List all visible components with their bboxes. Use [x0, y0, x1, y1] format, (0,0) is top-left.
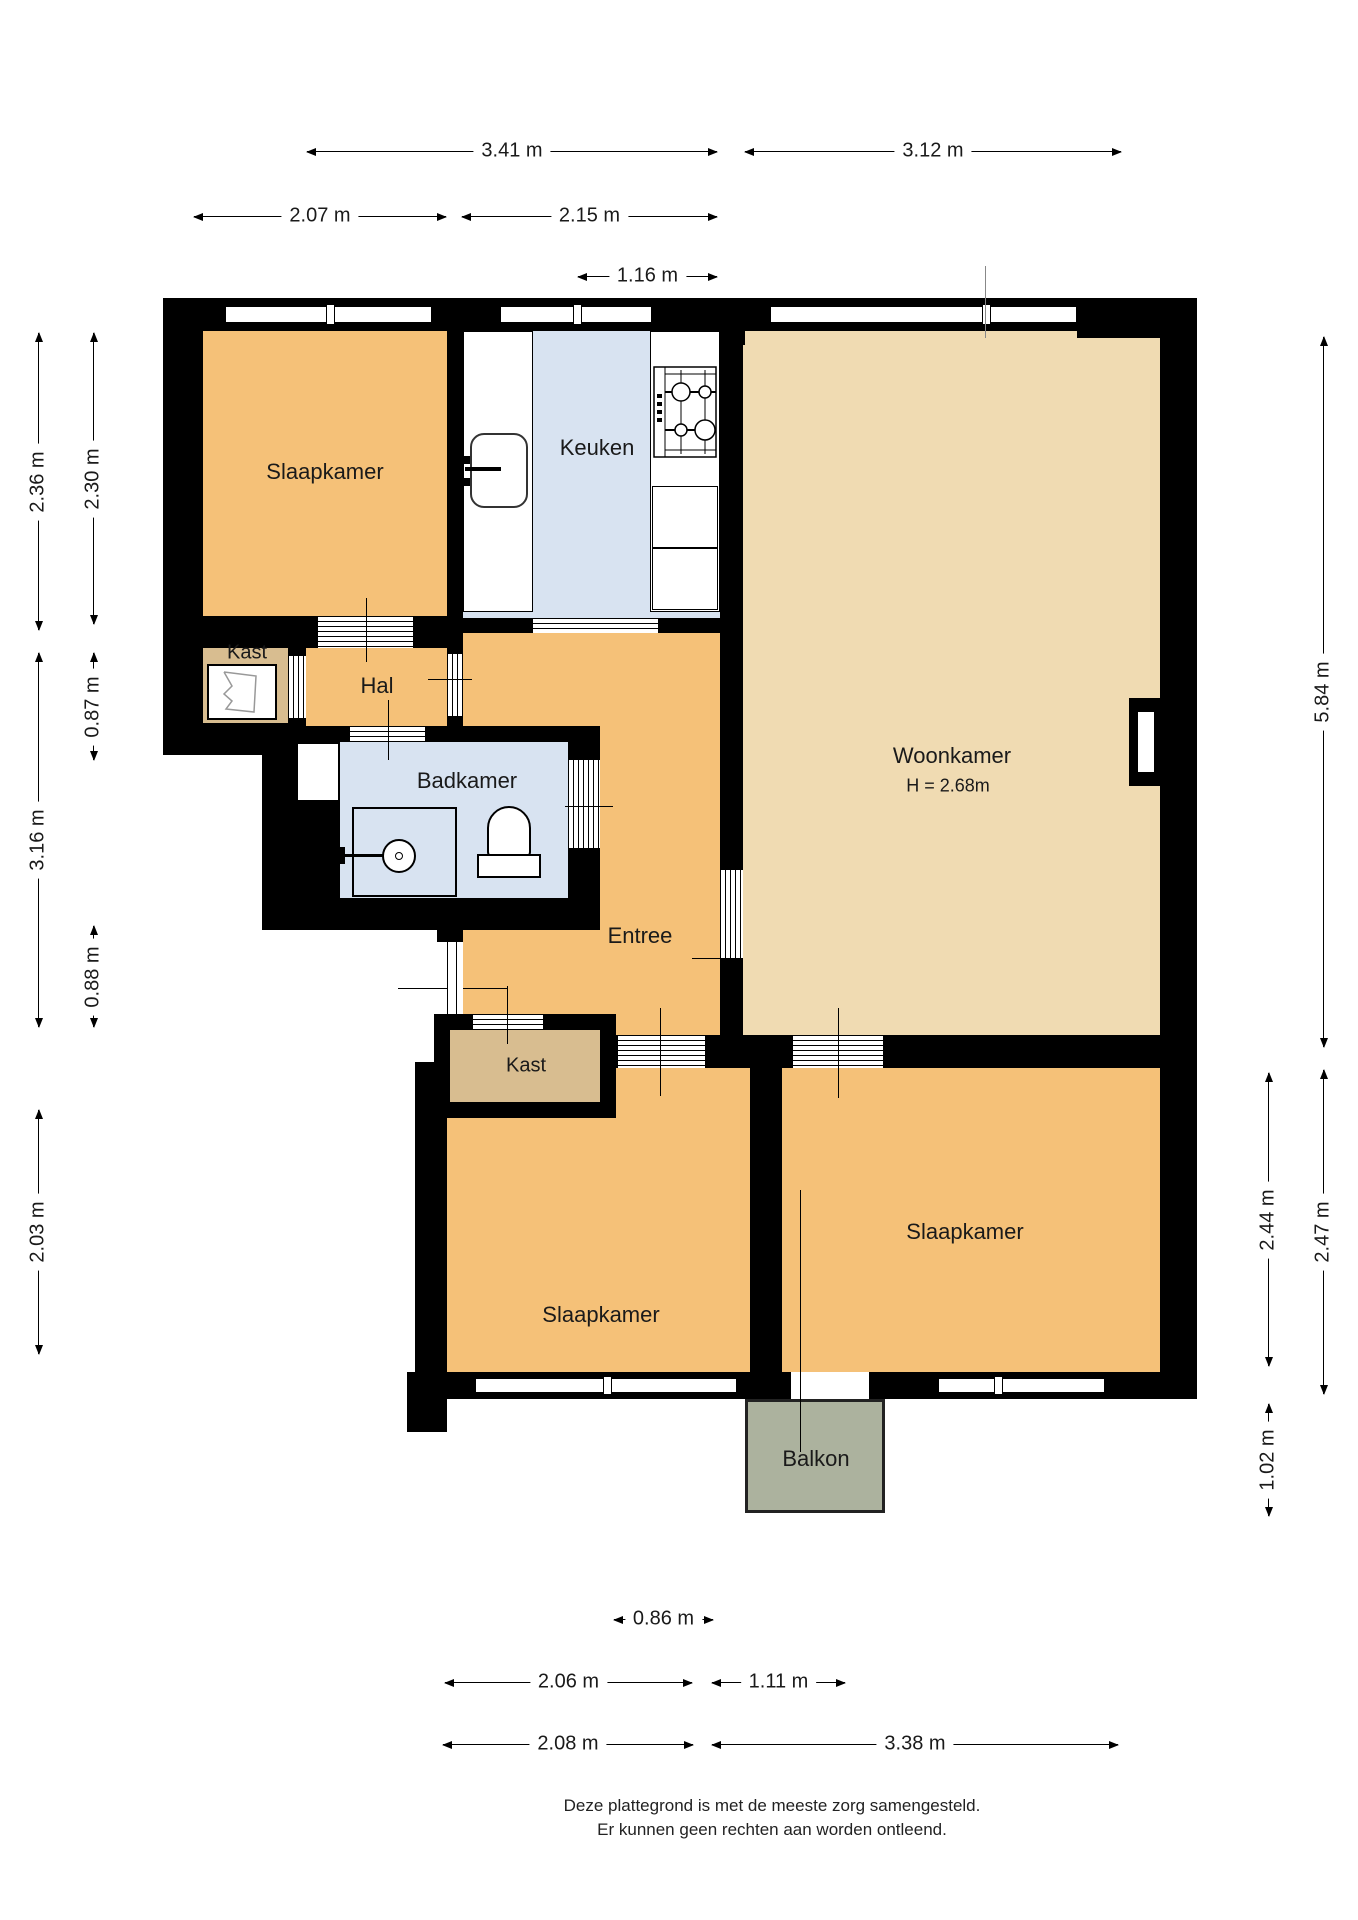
- faucet-icon: [465, 467, 501, 471]
- front-door-leaf: [447, 942, 457, 1017]
- door-badkamer: [568, 760, 600, 848]
- wall-slaapkamer2-west: [415, 1062, 447, 1372]
- dim-bottom-086: 0.86 m: [614, 1619, 713, 1620]
- wall-badkamer-south: [296, 898, 600, 930]
- balkon-door-opening: [790, 1372, 870, 1399]
- swing-line: [838, 1008, 839, 1098]
- swing-line: [565, 806, 613, 807]
- label-hal: Hal: [360, 673, 393, 699]
- swing-line: [388, 700, 389, 760]
- floor-woonkamer: [743, 331, 1160, 1035]
- dim-left-230: 2.30 m: [93, 333, 94, 624]
- toilet-tank: [477, 854, 541, 878]
- wall-right: [1160, 331, 1197, 1399]
- dim-left-236: 2.36 m: [38, 333, 39, 630]
- swing-line: [463, 988, 507, 989]
- shower-drain: [395, 852, 403, 860]
- faucet-handle: [461, 478, 470, 486]
- swing-line: [428, 679, 472, 680]
- label-woonkamer: Woonkamer: [893, 743, 1011, 769]
- label-entree: Entree: [608, 923, 673, 949]
- swing-line: [800, 1190, 801, 1452]
- dim-bottom-206: 2.06 m: [445, 1682, 692, 1683]
- reference-line: [985, 266, 986, 338]
- swing-line: [398, 988, 448, 989]
- window-mullion: [326, 305, 335, 324]
- label-slaapkamer-1: Slaapkamer: [266, 459, 383, 485]
- wall-below-slaapkamer1: [163, 616, 463, 648]
- shower-bracket: [338, 847, 345, 864]
- swing-line: [507, 986, 508, 1044]
- wall-hal-badkamer: [262, 726, 600, 742]
- dim-bottom-208: 2.08 m: [443, 1744, 693, 1745]
- dim-bottom-338: 3.38 m: [712, 1744, 1118, 1745]
- label-keuken: Keuken: [560, 435, 635, 461]
- wall-slaapkamer2-3: [750, 1035, 782, 1399]
- dim-top-312: 3.12 m: [745, 151, 1121, 152]
- wall-badkamer-west: [262, 755, 296, 930]
- faucet-handle: [461, 456, 470, 464]
- footer-disclaimer-line2: Er kunnen geen rechten aan worden ontlee…: [597, 1820, 947, 1840]
- label-slaapkamer-3: Slaapkamer: [906, 1219, 1023, 1245]
- swing-line: [692, 958, 743, 959]
- door-kast1: [288, 656, 306, 718]
- dim-bottom-111: 1.11 m: [712, 1682, 845, 1683]
- niche-slot: [1136, 710, 1156, 774]
- wall-shaft-bottom: [296, 802, 340, 898]
- label-balkon: Balkon: [782, 1446, 849, 1472]
- kitchen-cabinet: [652, 486, 718, 548]
- stove-icon: [653, 366, 717, 458]
- swing-line: [660, 1008, 661, 1096]
- dim-right-244: 2.44 m: [1268, 1073, 1269, 1366]
- window-mullion: [573, 305, 582, 324]
- door-keuken-entree: [533, 618, 658, 633]
- floor-plan: Slaapkamer Kast Hal Badkamer Keuken Woon…: [0, 0, 1358, 1920]
- door-slaapkamer2: [618, 1035, 705, 1068]
- window-slaapkamer3: [938, 1377, 1105, 1394]
- window-slaapkamer2: [475, 1377, 737, 1394]
- window-keuken: [500, 305, 652, 324]
- door-kast2: [473, 1014, 543, 1030]
- shaft: [296, 742, 340, 802]
- dim-left-316: 3.16 m: [38, 653, 39, 1027]
- dim-top-341: 3.41 m: [307, 151, 717, 152]
- label-kast-2: Kast: [506, 1055, 546, 1078]
- door-hal-entree: [447, 654, 463, 716]
- footer-disclaimer-line1: Deze plattegrond is met de meeste zorg s…: [564, 1796, 981, 1816]
- wall-entree-woonkamer: [720, 632, 743, 1068]
- dim-top-207: 2.07 m: [194, 216, 446, 217]
- window-mullion: [982, 305, 991, 324]
- dim-left-203: 2.03 m: [38, 1110, 39, 1354]
- window-mullion: [603, 1377, 612, 1394]
- label-woonkamer-height: H = 2.68m: [906, 776, 990, 797]
- label-slaapkamer-2: Slaapkamer: [542, 1302, 659, 1328]
- dim-right-102: 1.02 m: [1268, 1404, 1269, 1516]
- kitchen-cabinet: [652, 548, 718, 610]
- label-badkamer: Badkamer: [417, 768, 517, 794]
- dim-left-088: 0.88 m: [93, 926, 94, 1027]
- dim-top-215: 2.15 m: [462, 216, 717, 217]
- window-mullion: [994, 1377, 1003, 1394]
- dim-top-116: 1.16 m: [578, 276, 717, 277]
- dim-right-247: 2.47 m: [1323, 1070, 1324, 1394]
- window-woonkamer: [770, 305, 1077, 324]
- meter-icon: [214, 668, 266, 716]
- label-kast-1: Kast: [227, 642, 267, 665]
- toilet-icon: [487, 806, 531, 858]
- wall-left: [163, 331, 203, 755]
- wall-keuken-woonkamer: [720, 345, 743, 632]
- dim-right-584: 5.84 m: [1323, 337, 1324, 1047]
- shower-hose: [340, 854, 386, 857]
- wall-slaapkamer1-keuken: [447, 331, 463, 616]
- dim-left-087: 0.87 m: [93, 653, 94, 760]
- window-slaapkamer1: [225, 305, 432, 324]
- swing-line: [366, 598, 367, 662]
- door-entree-woonkamer: [720, 870, 743, 958]
